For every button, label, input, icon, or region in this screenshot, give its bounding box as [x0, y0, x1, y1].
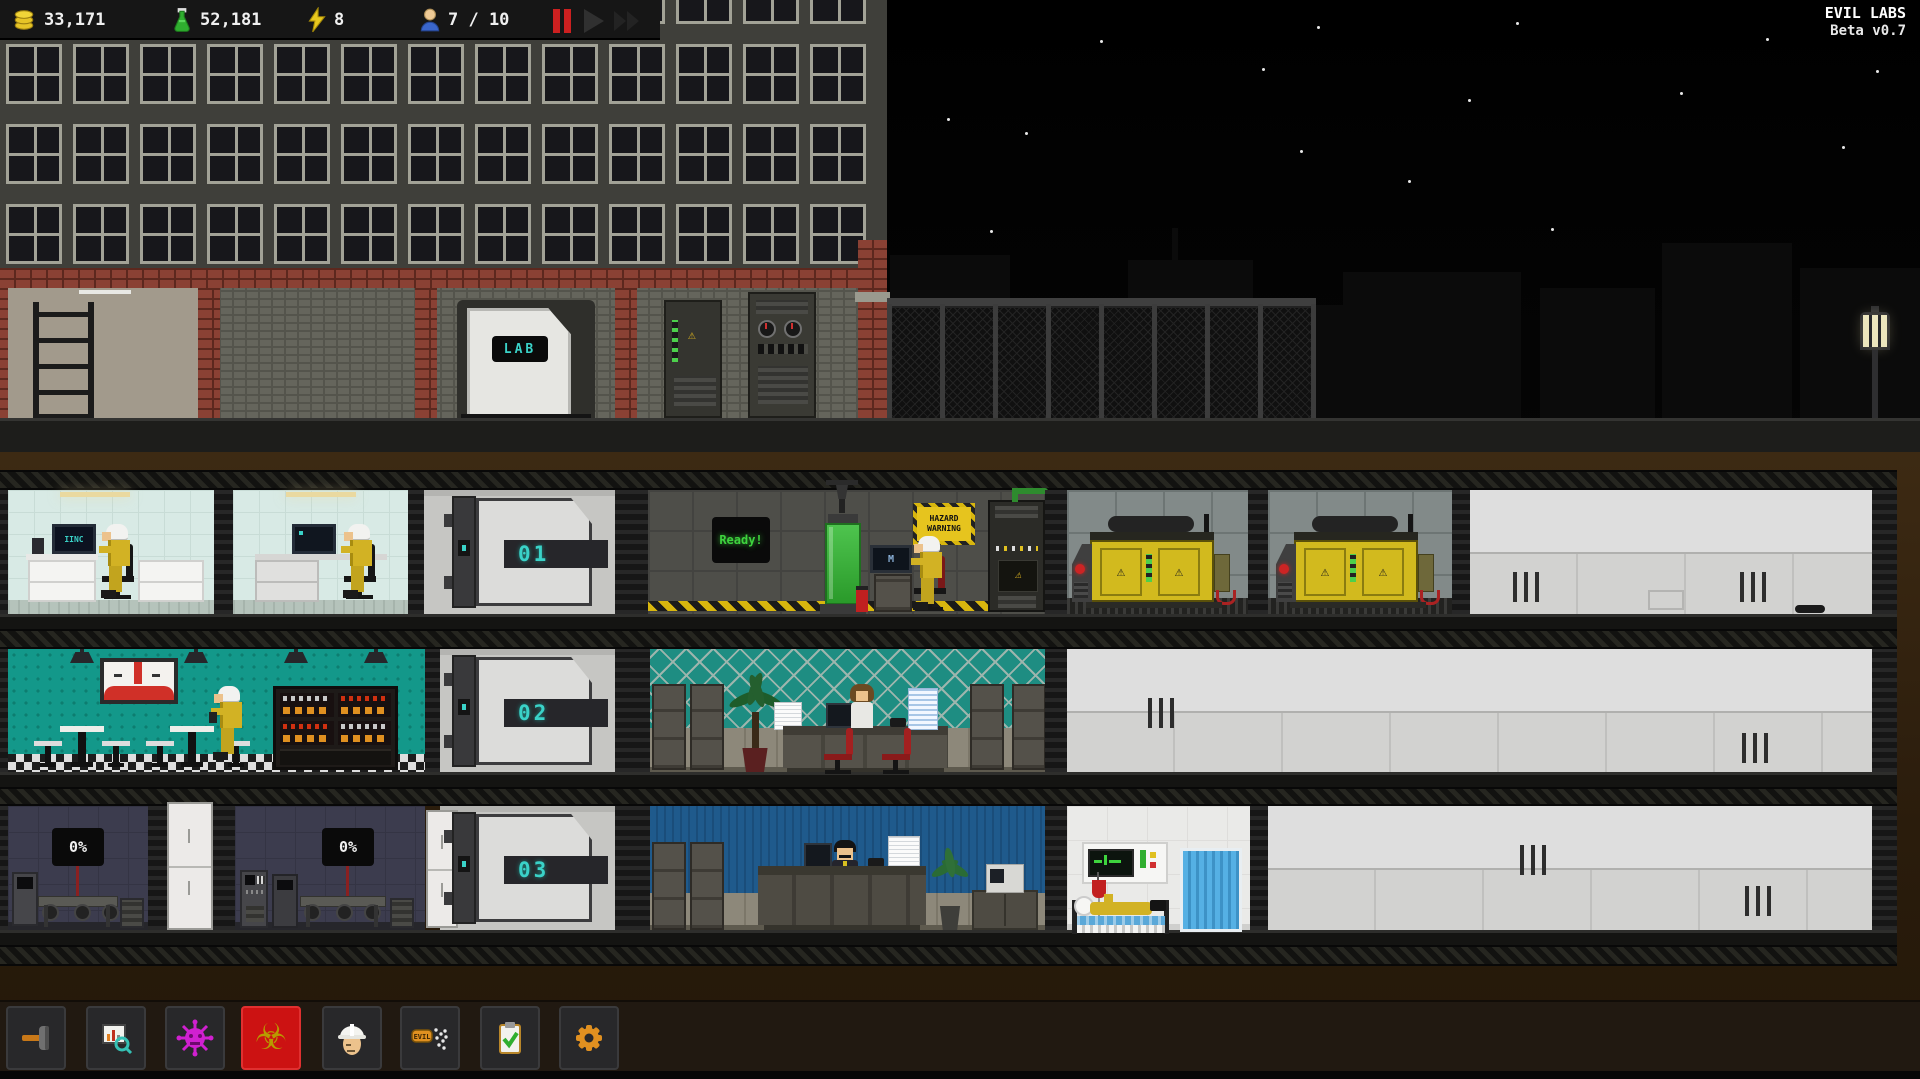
progress-sign-a: 0% — [52, 828, 104, 866]
machine-console[interactable] — [240, 870, 268, 928]
brick-band — [0, 268, 887, 288]
workstation-monitor-text: M — [888, 554, 894, 565]
hazard-sign-line1: HAZARD — [930, 514, 959, 524]
wall-column — [1045, 649, 1067, 772]
office-chair — [880, 728, 914, 774]
office-worker[interactable] — [848, 684, 876, 730]
filing-cabinet[interactable] — [1012, 684, 1046, 770]
brick-pillar — [415, 288, 437, 418]
ready-sign: Ready! — [712, 517, 770, 563]
fast-forward-button[interactable] — [614, 11, 644, 31]
brick-pillar — [0, 288, 8, 418]
gear-icon — [569, 1018, 609, 1058]
building-window — [408, 124, 464, 184]
boots — [101, 590, 116, 598]
game-title-block: EVIL LABS Beta v0.7 — [1825, 4, 1906, 40]
stool-base — [40, 763, 56, 767]
game-viewport: LAB ⚠ — [0, 0, 1920, 1079]
perimeter-fence — [887, 298, 1316, 418]
filing-cabinet[interactable] — [652, 842, 686, 930]
stool-base — [152, 763, 168, 767]
elevator-floor-label: 01 — [518, 542, 549, 566]
vent-marks — [1148, 698, 1175, 728]
server-machine[interactable]: ⚠ — [988, 500, 1045, 612]
gas-pipe — [1012, 488, 1048, 502]
generator-roof — [1294, 532, 1418, 540]
filing-cabinet[interactable] — [690, 842, 724, 930]
ceiling-lamp — [284, 652, 308, 663]
chair-base — [883, 770, 909, 774]
suit-torso — [920, 552, 942, 578]
sidewalk — [0, 418, 1920, 452]
machine-console[interactable] — [12, 872, 38, 926]
locker-handle — [441, 883, 443, 897]
fence-post — [1046, 304, 1051, 418]
chair-base — [825, 770, 851, 774]
building-window — [743, 0, 799, 24]
wall-column — [0, 649, 8, 772]
fence-post — [993, 304, 998, 418]
tasks-button[interactable] — [480, 1006, 540, 1070]
research-button[interactable] — [86, 1006, 146, 1070]
fire-extinguisher — [856, 586, 868, 612]
arm — [911, 558, 923, 565]
floor-slab — [0, 930, 1897, 945]
desk-phone — [890, 718, 906, 727]
building-window — [408, 204, 464, 264]
filing-cabinet[interactable] — [690, 684, 724, 770]
belt-leg — [374, 905, 378, 927]
building-window — [6, 204, 62, 264]
brick-pillar — [198, 288, 220, 418]
legs — [351, 566, 364, 592]
wall-column — [148, 806, 167, 930]
desk-drawers[interactable] — [255, 560, 319, 602]
lab-door-sign: LAB — [492, 336, 548, 362]
connector-box — [1418, 554, 1434, 592]
building-window — [676, 124, 732, 184]
wall-shelf — [79, 290, 131, 294]
building-window — [341, 204, 397, 264]
biohazard-button[interactable]: ☣ — [241, 1006, 301, 1070]
machine-box[interactable] — [120, 898, 144, 928]
building-window — [73, 124, 129, 184]
desk-drawers[interactable] — [28, 560, 96, 602]
ceiling-band — [0, 629, 1897, 649]
building-window — [810, 124, 866, 184]
fence-post — [1205, 304, 1210, 418]
electrical-cabinet[interactable]: ⚠ — [664, 300, 722, 418]
locker-handle — [188, 881, 190, 895]
building-window — [341, 124, 397, 184]
locker-handle — [441, 835, 443, 849]
ladder-rail — [33, 302, 39, 418]
building-window — [73, 44, 129, 104]
ceiling-band — [0, 945, 1897, 966]
building-window — [408, 44, 464, 104]
suit-torso — [350, 540, 372, 566]
coins-icon — [12, 8, 36, 32]
building-window — [542, 124, 598, 184]
building-window — [475, 44, 531, 104]
legs — [921, 578, 934, 604]
ceiling-light — [60, 492, 130, 497]
wall-column — [1872, 490, 1897, 614]
flask-icon — [170, 7, 194, 33]
virus-icon — [175, 1018, 215, 1058]
wall-column — [615, 649, 650, 772]
lab-monitor[interactable] — [292, 524, 336, 554]
building-window — [274, 124, 330, 184]
fence-post — [1099, 304, 1104, 418]
breaker-switches — [758, 344, 808, 354]
arm — [341, 546, 353, 553]
wall-upper-band — [1067, 649, 1872, 713]
floor-hatch[interactable] — [1648, 590, 1684, 610]
building-window — [743, 124, 799, 184]
table-base — [71, 762, 93, 767]
status-leds — [1350, 554, 1356, 582]
elevator-door-3[interactable]: 03 — [444, 812, 614, 924]
scientist[interactable] — [100, 524, 138, 604]
virus-button[interactable] — [165, 1006, 225, 1070]
wall-column — [615, 490, 648, 614]
poster — [100, 658, 178, 704]
scientist[interactable] — [342, 524, 380, 604]
grill-slats — [1074, 582, 1088, 598]
energy-value: 8 — [334, 10, 344, 30]
ceiling-light — [286, 492, 356, 497]
scientist[interactable] — [912, 536, 950, 616]
wall-column — [1045, 806, 1067, 930]
office-desk[interactable] — [783, 726, 948, 772]
building-window — [6, 44, 62, 104]
lab-floor — [233, 600, 408, 614]
legs — [109, 566, 122, 592]
generator[interactable]: ⚠⚠ — [1282, 512, 1444, 608]
progress-sign-b: 0% — [322, 828, 374, 866]
ceiling-lamp — [184, 652, 208, 663]
lab-sign-text: LAB — [504, 342, 536, 357]
wall-column — [425, 649, 440, 772]
game-title: EVIL LABS — [1825, 4, 1906, 23]
elevator-floor-label: 03 — [518, 858, 549, 882]
building-window — [6, 124, 62, 184]
ladder-rung — [33, 312, 94, 317]
fence-post — [940, 304, 945, 418]
biohazard-icon: ☣ — [255, 1020, 287, 1056]
lamp-pole — [1872, 350, 1878, 422]
brick-pillar — [615, 288, 637, 418]
workstation-monitor[interactable]: M — [870, 545, 912, 573]
boots — [343, 590, 358, 598]
building-window — [475, 124, 531, 184]
building-window — [810, 44, 866, 104]
propaganda-button[interactable]: EVIL — [400, 1006, 460, 1070]
vent-marks — [1740, 572, 1767, 602]
tall-paper-stack — [908, 688, 938, 730]
staff-button[interactable] — [322, 1006, 382, 1070]
generator-door: ⚠ — [1304, 548, 1346, 596]
chair-stem — [835, 760, 840, 770]
lab-monitor[interactable]: IINC — [52, 524, 96, 554]
stool-base — [108, 763, 124, 767]
patient[interactable] — [1074, 894, 1174, 920]
belt-wheel — [74, 904, 91, 921]
progress-b-text: 0% — [339, 838, 357, 856]
evil-badge-text: EVIL — [414, 1033, 431, 1041]
settings-button[interactable] — [559, 1006, 619, 1070]
ceiling-lamp — [70, 652, 94, 663]
filing-cabinet[interactable] — [970, 684, 1004, 770]
building-window — [475, 204, 531, 264]
bolt-icon — [306, 7, 328, 33]
vent-marks — [1742, 733, 1769, 763]
legs — [221, 728, 234, 754]
ladder[interactable] — [33, 302, 95, 418]
resource-bar: 33,171 52,181 8 7 / 10 — [0, 0, 660, 40]
cabinet-vents — [758, 366, 808, 404]
generator[interactable]: ⚠⚠ — [1078, 512, 1240, 608]
fence-post — [1152, 304, 1157, 418]
empty-room-f3[interactable] — [1268, 806, 1872, 930]
building-window — [542, 204, 598, 264]
belt-wheel — [364, 904, 381, 921]
lab-entrance-door[interactable]: LAB — [457, 300, 595, 418]
suit-torso — [108, 540, 130, 566]
vent-marks — [1513, 572, 1540, 602]
belt-leg — [306, 905, 310, 927]
locker-seam — [169, 866, 211, 868]
conveyor-belt[interactable] — [38, 896, 116, 928]
chair-back — [846, 728, 853, 756]
lab-monitor-text: IINC — [64, 535, 83, 544]
arm — [99, 546, 111, 553]
building-window — [676, 44, 732, 104]
door-stop — [1795, 605, 1825, 613]
belt-wheel — [336, 904, 353, 921]
hardhat-icon — [332, 1018, 372, 1058]
wall-column — [1250, 806, 1268, 930]
building-window — [810, 0, 866, 24]
chair-stem — [893, 760, 898, 770]
ready-sign-text: Ready! — [719, 533, 762, 547]
gauge-dial — [784, 320, 802, 338]
warning-light — [1279, 564, 1289, 574]
vending-machine[interactable] — [273, 686, 398, 770]
progress-a-text: 0% — [69, 838, 87, 856]
white-locker[interactable] — [167, 802, 213, 930]
wall-column — [1872, 806, 1897, 930]
generator-roof — [1090, 532, 1214, 540]
conveyor-belt[interactable] — [300, 896, 384, 928]
machine-box[interactable] — [390, 898, 414, 928]
table-leg — [188, 732, 196, 764]
clipboard-check-icon — [490, 1018, 530, 1058]
potted-plant — [926, 858, 972, 930]
street-lamp — [1858, 306, 1896, 428]
bottom-edge — [0, 1071, 1920, 1079]
ceiling-band — [0, 470, 1897, 490]
building-window — [140, 124, 196, 184]
belt-leg — [44, 905, 48, 927]
building-window — [609, 44, 665, 104]
side-cabinet — [972, 890, 1038, 930]
fence-post — [1258, 304, 1263, 418]
table-base — [181, 762, 203, 767]
lab-door-slab — [467, 308, 571, 418]
money-value: 33,171 — [44, 10, 105, 30]
paper-stack — [888, 836, 920, 870]
locker-handle — [188, 829, 190, 843]
grill-slats — [1278, 582, 1292, 598]
computer-unit — [986, 864, 1024, 893]
exhaust-tank — [1108, 516, 1194, 532]
building-window — [609, 204, 665, 264]
building-window — [207, 204, 263, 264]
building-window — [140, 204, 196, 264]
ladder-rung — [33, 338, 94, 343]
building-window — [743, 44, 799, 104]
building-window — [676, 0, 732, 24]
wall-column — [0, 490, 8, 614]
medical-locker[interactable] — [1180, 848, 1242, 932]
building-window — [207, 44, 263, 104]
gauge-dial — [758, 320, 776, 338]
status-leds — [672, 320, 678, 362]
cabinet-vents — [756, 300, 808, 314]
boots — [213, 752, 228, 760]
boots — [913, 602, 928, 610]
wall-column — [213, 806, 235, 930]
building-window — [73, 204, 129, 264]
wall-column — [1872, 649, 1897, 772]
building-window — [341, 44, 397, 104]
floor-slab — [0, 614, 1897, 629]
staff-value: 7 / 10 — [448, 10, 509, 30]
chart-magnifier-icon — [96, 1018, 136, 1058]
building-window — [542, 44, 598, 104]
build-button[interactable] — [6, 1006, 66, 1070]
belt-leg — [106, 905, 110, 927]
game-version: Beta v0.7 — [1825, 23, 1906, 41]
wall-column — [214, 490, 233, 614]
wall-upper-band — [1470, 490, 1872, 554]
hazard-sign-line2: WARNING — [927, 524, 961, 534]
scientist[interactable] — [212, 686, 250, 766]
elevator-floor-label: 02 — [518, 701, 549, 725]
wall-column — [408, 490, 424, 614]
vent-marks — [1520, 845, 1547, 875]
lamp-head — [1860, 312, 1890, 350]
building-window — [609, 124, 665, 184]
corner-post — [858, 240, 887, 418]
elevator-door-1[interactable]: 01 — [444, 496, 614, 608]
antenna — [1172, 228, 1178, 262]
building-facade — [0, 0, 887, 268]
post-cap — [855, 292, 890, 302]
play-button[interactable] — [582, 9, 606, 33]
generator-base — [1290, 602, 1426, 608]
desktop — [26, 554, 98, 560]
status-leds — [1146, 554, 1152, 582]
elevator-door-2[interactable]: 02 — [444, 655, 614, 767]
ladder-rail — [88, 302, 94, 418]
executive-desk[interactable] — [758, 866, 926, 930]
machine-console[interactable] — [272, 874, 298, 928]
building-window — [274, 44, 330, 104]
research-value: 52,181 — [200, 10, 261, 30]
wall-column — [1045, 490, 1067, 614]
building-window — [676, 204, 732, 264]
person-icon — [418, 7, 442, 33]
filing-cabinet[interactable] — [652, 684, 686, 770]
building-window — [743, 204, 799, 264]
generator-door: ⚠ — [1100, 548, 1142, 596]
ceiling-lamp — [364, 652, 388, 663]
building-window — [274, 204, 330, 264]
pen-cup — [32, 538, 44, 554]
building-window — [207, 124, 263, 184]
workstation-cabinet — [874, 574, 912, 612]
building-window — [140, 44, 196, 104]
breaker-cabinet[interactable] — [748, 292, 816, 418]
generator-door: ⚠ — [1362, 548, 1404, 596]
evil-spray-icon: EVIL — [410, 1018, 450, 1058]
pause-button[interactable] — [551, 9, 573, 33]
vent-marks — [1745, 886, 1772, 916]
floor-slab — [0, 772, 1897, 787]
fence-post — [887, 304, 892, 418]
wall-column — [1452, 490, 1470, 614]
connector-box — [1214, 554, 1230, 592]
chair-back — [904, 728, 911, 756]
wall-column — [0, 806, 8, 930]
generator-base — [1086, 602, 1222, 608]
ceiling-band — [0, 787, 1897, 806]
table-leg — [78, 732, 86, 764]
warning-triangle-icon: ⚠ — [688, 328, 696, 343]
ladder-rung — [33, 390, 94, 395]
cabinet-vents — [674, 376, 716, 406]
wall-column — [615, 806, 650, 930]
wall-upper-band — [1268, 806, 1872, 870]
generator-door: ⚠ — [1158, 548, 1200, 596]
hammer-icon — [16, 1018, 56, 1058]
wall-column — [1248, 490, 1268, 614]
exhaust-tank — [1312, 516, 1398, 532]
drink-cup — [209, 712, 217, 723]
desk-drawers[interactable] — [138, 560, 204, 602]
ladder-rung — [33, 364, 94, 369]
office-chair — [822, 728, 856, 774]
warning-light — [1075, 564, 1085, 574]
fence-post — [1311, 304, 1316, 418]
belt-wheel — [102, 904, 119, 921]
suit-torso — [220, 702, 242, 728]
